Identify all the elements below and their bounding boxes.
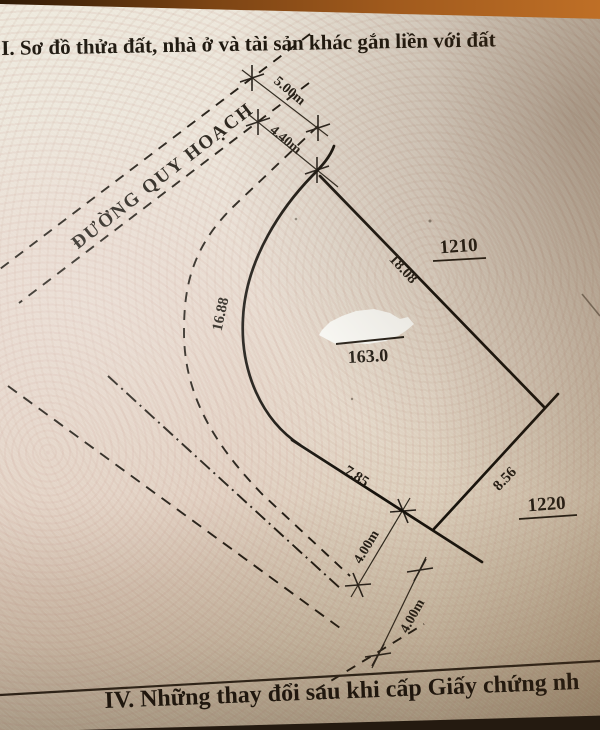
certificate-photo: ĐƯỜNG QUY HOẠCH 18.08 16.88 7.85 8.56 5.…	[0, 0, 600, 730]
edge-length-left-curve: 16.88	[210, 296, 233, 332]
dim-setback: 4.40m	[267, 123, 305, 158]
adjacent-parcel-1220: 1220	[527, 493, 566, 517]
redaction-blob	[319, 309, 414, 345]
road-label: ĐƯỜNG QUY HOẠCH	[67, 98, 258, 254]
dim-lower-road-2: 4.00m	[398, 597, 429, 636]
edge-length-bottom-right: 8.56	[490, 464, 520, 494]
paper-specks	[295, 218, 432, 400]
dim-lower-road-1: 4.00m	[351, 528, 383, 567]
edge-length-right: 18.08	[386, 251, 421, 287]
parcel-boundary	[243, 146, 558, 562]
dim-road-width: 5.00m	[271, 74, 309, 109]
edge-length-bottom-left: 7.85	[341, 463, 372, 491]
dash-dot-line	[108, 376, 342, 590]
dimension-tick-marks	[240, 65, 433, 666]
parcel-area: 163.0	[347, 345, 388, 367]
dimension-lines	[242, 70, 426, 668]
parcel-1210-underline	[433, 258, 486, 261]
adjacent-parcel-1210: 1210	[439, 235, 478, 259]
parcel-diagram: ĐƯỜNG QUY HOẠCH 18.08 16.88 7.85 8.56 5.…	[0, 0, 600, 730]
paper-crease	[582, 294, 600, 316]
